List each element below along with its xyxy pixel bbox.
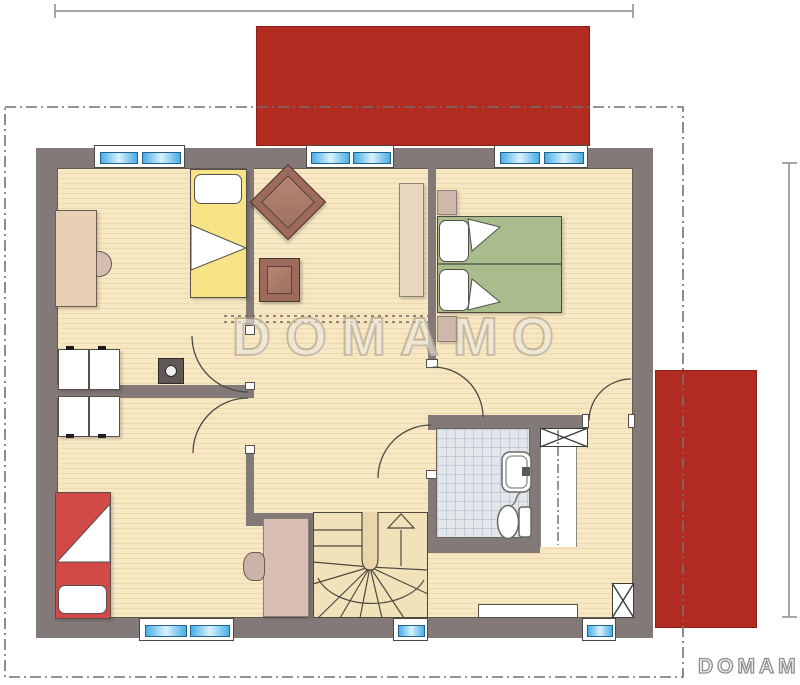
- window-pane: [587, 625, 613, 637]
- window: [94, 145, 185, 168]
- wall-bathroom-south: [428, 538, 540, 553]
- window-pane: [398, 625, 425, 637]
- window: [582, 618, 616, 641]
- wardrobe-handle: [66, 346, 74, 350]
- wardrobe-tall: [399, 183, 424, 297]
- window-pane: [544, 152, 584, 164]
- wall-cap: [582, 414, 589, 428]
- wall-cap: [245, 382, 255, 390]
- duct: [540, 447, 577, 547]
- corner-shaft-box: [612, 583, 634, 618]
- window-pane: [190, 625, 230, 637]
- wardrobe: [58, 396, 120, 437]
- window: [306, 145, 394, 168]
- pillow: [439, 269, 469, 311]
- staircase: [313, 512, 428, 618]
- wall-cap: [245, 445, 255, 454]
- window-pane: [100, 152, 138, 164]
- wall-bathroom-east: [530, 428, 540, 545]
- bathroom-tiles: [436, 428, 530, 538]
- armchair: [259, 258, 300, 302]
- window-pane: [353, 152, 391, 164]
- pillow: [194, 174, 242, 204]
- dimension-line-top: [55, 4, 633, 18]
- window-pane: [311, 152, 350, 164]
- wall-hall-west: [246, 453, 254, 520]
- wardrobe: [58, 349, 120, 390]
- stool: [243, 552, 265, 581]
- dimension-line-right: [782, 163, 797, 617]
- pillow: [58, 585, 107, 614]
- window: [393, 618, 428, 641]
- wardrobe-handle: [98, 434, 106, 438]
- window: [494, 145, 588, 168]
- roof-slab-top: [256, 26, 590, 146]
- desk: [55, 210, 97, 307]
- brand-logo: DOMAMO: [698, 655, 800, 679]
- hall-cabinet: [263, 518, 309, 617]
- wardrobe-handle: [66, 434, 74, 438]
- nightstand: [437, 190, 457, 215]
- watermark-center: DOMAMO: [200, 306, 600, 368]
- window-pane: [142, 152, 181, 164]
- wall-cap: [628, 414, 635, 428]
- sideboard: [478, 604, 578, 618]
- pillow: [439, 220, 469, 262]
- wardrobe-handle: [98, 346, 106, 350]
- wall-bathroom-north: [428, 415, 588, 428]
- shaft-box: [540, 428, 588, 447]
- roof-slab-right: [655, 370, 757, 628]
- flue-stove-icon: [158, 358, 184, 384]
- window: [139, 618, 234, 641]
- floor-plan: DOMAMO DOMAMO: [0, 0, 800, 685]
- window-pane: [145, 625, 187, 637]
- window-pane: [500, 152, 540, 164]
